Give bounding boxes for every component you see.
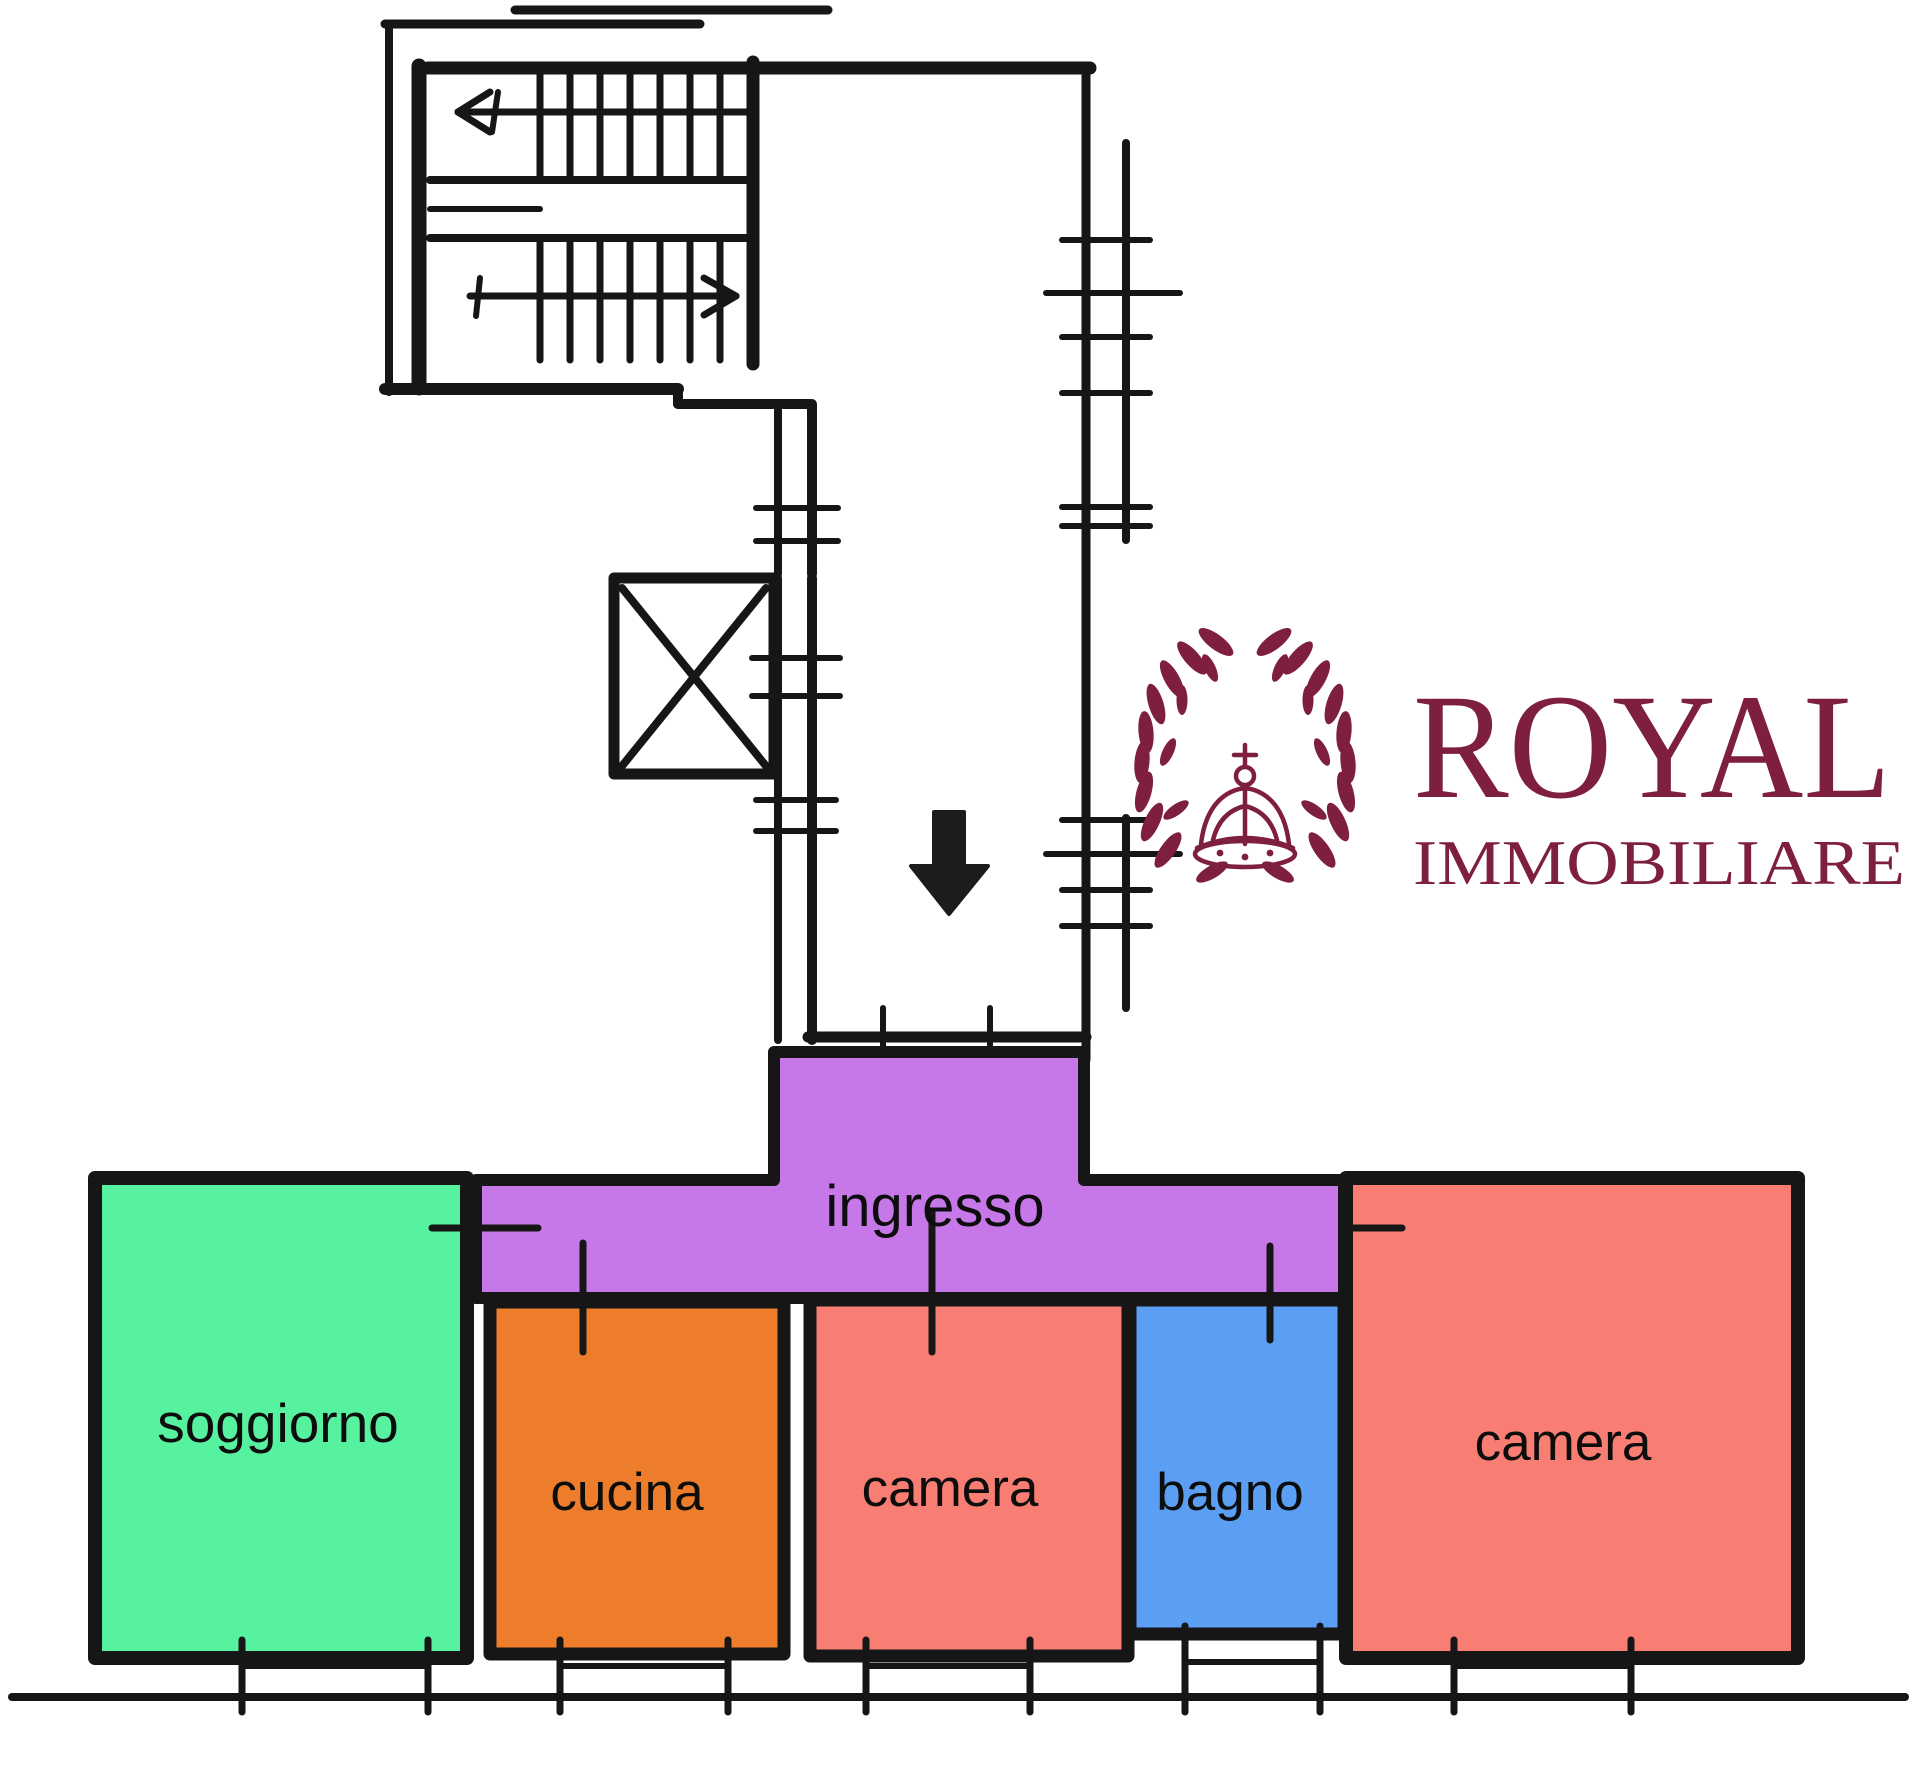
brand-line2: IMMOBILIARE [1413, 827, 1905, 898]
logo: ROYAL IMMOBILIARE [1131, 623, 1905, 898]
label-ingresso: ingresso [825, 1174, 1044, 1239]
staircase [385, 10, 1090, 404]
corridor-left-wall [752, 404, 1086, 1070]
label-soggiorno: soggiorno [157, 1392, 399, 1454]
label-camera-right: camera [1475, 1413, 1652, 1472]
entrance-arrow-icon [911, 812, 988, 914]
elevator-icon [614, 578, 774, 774]
label-bagno: bagno [1156, 1463, 1303, 1522]
stair-treads-lower [540, 242, 720, 360]
brand-name: ROYAL IMMOBILIARE [1413, 664, 1905, 898]
label-camera-mid: camera [862, 1459, 1039, 1518]
corridor-right-wall [1046, 66, 1180, 1060]
floor-plan-drawing: ingresso soggiorno cucina camera bagno c… [0, 0, 1920, 1770]
crown-icon [1195, 745, 1295, 867]
stair-arrow-left-icon [458, 92, 750, 132]
label-cucina: cucina [550, 1463, 704, 1522]
stair-treads-upper [540, 74, 720, 178]
brand-line1: ROYAL [1413, 664, 1891, 830]
crown-jewels [1217, 850, 1274, 861]
floor-plan-page: ingresso soggiorno cucina camera bagno c… [0, 0, 1920, 1770]
